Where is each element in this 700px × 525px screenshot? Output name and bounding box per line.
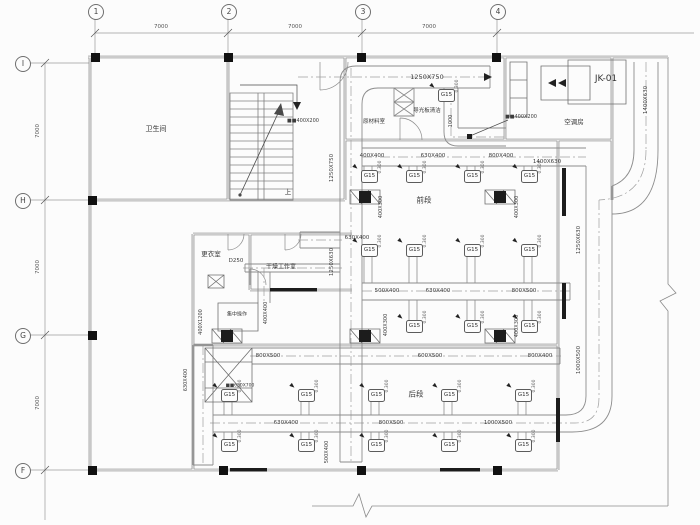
bottom-ahu-fan	[205, 348, 252, 402]
central-control-box	[218, 303, 258, 331]
cad-linework	[0, 0, 700, 525]
ducts	[193, 62, 658, 465]
leader-arrow-icon	[293, 102, 301, 110]
jk01-flow-arrow-icon	[548, 79, 556, 87]
damper-tag-box	[208, 275, 224, 288]
stair-up-arrow-icon	[274, 103, 284, 116]
damper-actuators	[221, 191, 506, 342]
equipment	[205, 60, 626, 402]
jk01-flow-arrow-icon	[558, 79, 566, 87]
hvac-floor-plan-drawing: 1234IHGF700070007000700070007000卫生间原材料室导…	[0, 0, 700, 525]
door-arcs	[228, 62, 422, 285]
wall-fills	[230, 168, 566, 472]
staircase	[230, 93, 293, 200]
walls	[88, 57, 668, 470]
ac-room-coil	[510, 62, 527, 117]
flow-direction-icon	[484, 73, 492, 81]
